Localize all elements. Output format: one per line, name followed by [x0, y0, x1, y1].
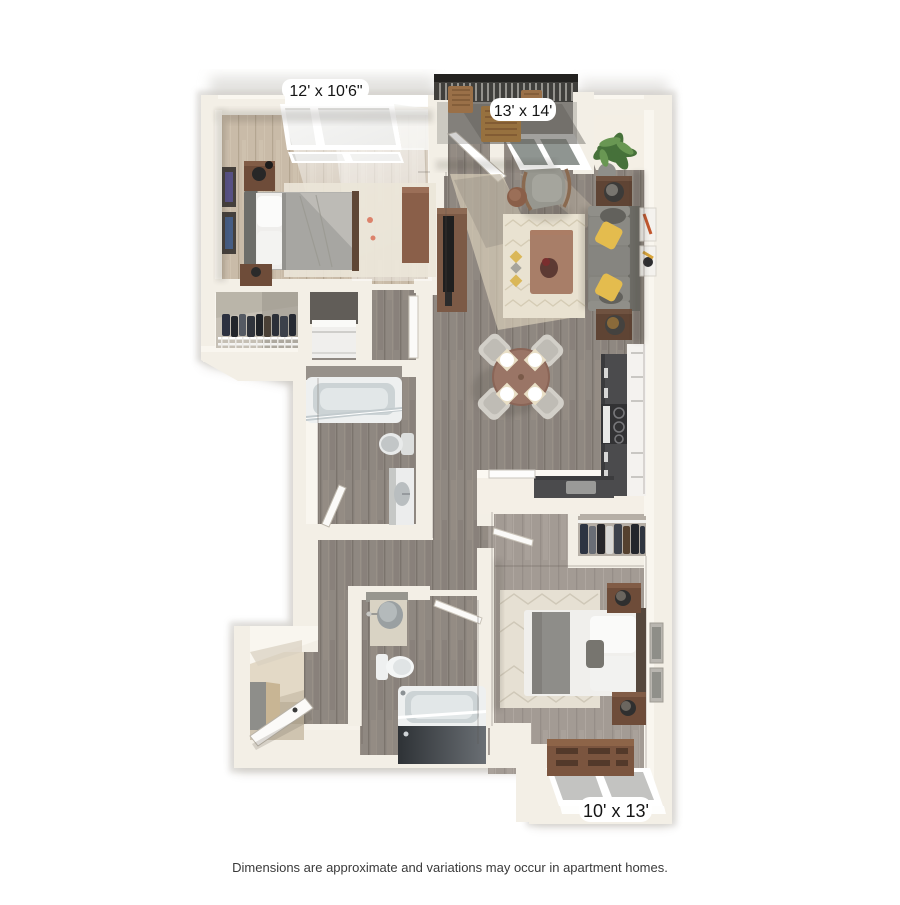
- svg-text:13' x 14': 13' x 14': [494, 103, 553, 120]
- svg-text:Dimensions are approximate and: Dimensions are approximate and variation…: [232, 860, 668, 875]
- svg-text:12' x 10'6": 12' x 10'6": [289, 83, 362, 100]
- svg-text:10' x 13': 10' x 13': [583, 801, 649, 821]
